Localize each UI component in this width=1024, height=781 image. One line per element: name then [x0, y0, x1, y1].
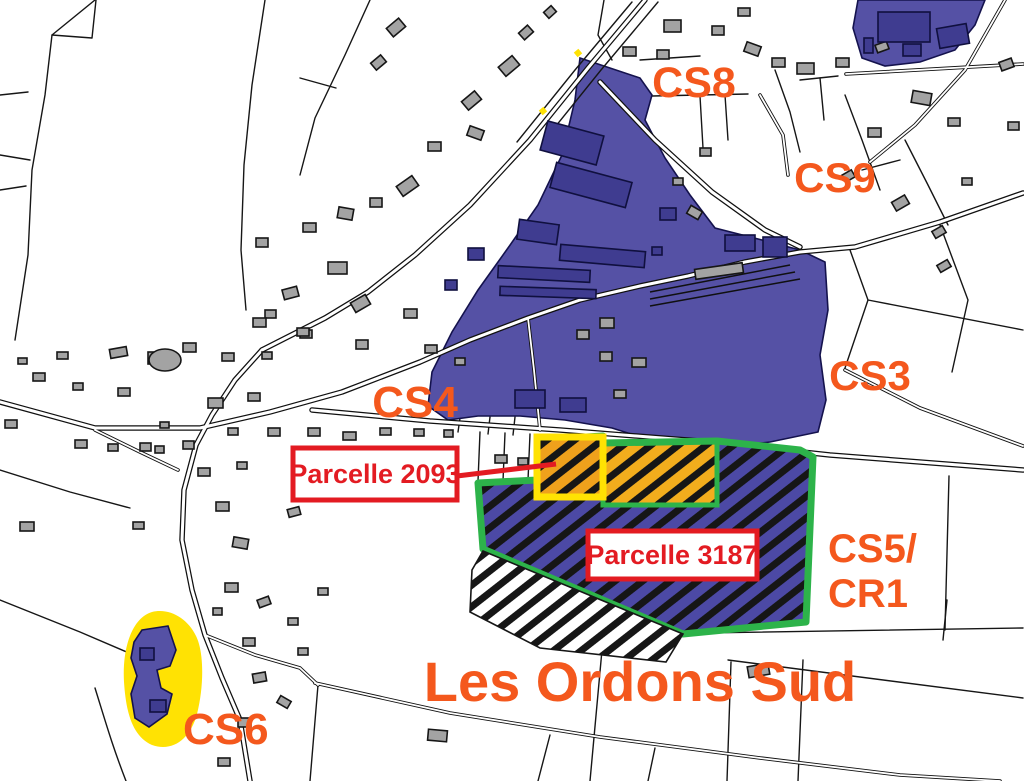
callout-parcelle-2093-text: Parcelle 2093 — [289, 459, 460, 489]
building — [1008, 122, 1019, 130]
callout-parcelle-3187-text: Parcelle 3187 — [586, 540, 757, 570]
building — [600, 318, 614, 328]
building — [140, 443, 151, 451]
building — [5, 420, 17, 428]
building — [75, 440, 87, 448]
building — [73, 383, 83, 390]
building — [140, 648, 154, 660]
building — [370, 198, 382, 207]
building — [218, 758, 230, 766]
zone-label-cs3: CS3 — [829, 352, 911, 399]
building — [265, 310, 276, 318]
building — [262, 352, 272, 359]
building — [298, 648, 308, 655]
building — [445, 280, 457, 290]
building — [183, 441, 194, 449]
building — [518, 458, 528, 465]
building — [468, 248, 484, 260]
building — [614, 390, 626, 398]
building — [864, 38, 873, 53]
building — [657, 50, 669, 59]
building — [414, 429, 424, 436]
zone-label-cs5: CS5/ — [828, 527, 917, 571]
building — [155, 446, 164, 453]
building — [337, 207, 354, 220]
building — [237, 462, 247, 469]
building — [632, 358, 646, 367]
building — [108, 444, 118, 451]
building — [868, 128, 881, 137]
building — [33, 373, 45, 381]
callout-parcelle-2093: Parcelle 2093 — [289, 448, 460, 500]
building — [318, 588, 328, 595]
building — [208, 398, 223, 408]
building — [700, 148, 711, 156]
building — [712, 26, 724, 35]
building — [198, 468, 210, 476]
building — [222, 353, 234, 361]
building — [560, 398, 586, 412]
building — [428, 142, 441, 151]
orange-hatched-strip — [603, 442, 717, 505]
building — [495, 455, 507, 463]
building — [404, 309, 417, 318]
building — [183, 343, 196, 352]
area-label-les-ordons-sud: Les Ordons Sud — [424, 650, 857, 713]
building — [356, 340, 368, 349]
building — [268, 428, 280, 436]
building — [308, 428, 320, 436]
cadastral-map: CS8 CS9 CS3 CS4 CS5/ CR1 CS6 Les Ordons … — [0, 0, 1024, 781]
building — [256, 238, 268, 247]
building — [911, 90, 932, 105]
building — [738, 8, 750, 16]
building — [797, 63, 814, 74]
building — [149, 349, 181, 371]
building — [878, 12, 930, 42]
building — [836, 58, 849, 67]
building — [600, 352, 612, 361]
building — [725, 235, 755, 251]
building — [248, 393, 260, 401]
building — [772, 58, 785, 67]
building — [444, 430, 453, 437]
zone-label-cs4: CS4 — [372, 378, 458, 427]
building — [228, 428, 238, 435]
building — [20, 522, 34, 531]
building — [252, 672, 266, 683]
building — [232, 537, 249, 549]
building — [343, 432, 356, 440]
building — [133, 522, 144, 529]
building — [297, 328, 309, 336]
building — [57, 352, 68, 359]
callout-parcelle-3187: Parcelle 3187 — [586, 531, 757, 579]
building — [664, 20, 681, 32]
building — [216, 502, 229, 511]
building — [903, 44, 921, 56]
building — [160, 422, 169, 428]
building — [962, 178, 972, 185]
building — [243, 638, 255, 646]
building — [18, 358, 27, 364]
building — [213, 608, 222, 615]
cadastral-map-svg: CS8 CS9 CS3 CS4 CS5/ CR1 CS6 Les Ordons … — [0, 0, 1024, 781]
zone-label-cs8: CS8 — [652, 59, 736, 107]
building — [515, 390, 545, 408]
building — [936, 24, 969, 49]
building — [948, 118, 960, 126]
building — [225, 583, 238, 592]
building — [623, 47, 636, 56]
building — [303, 223, 316, 232]
zone-label-cs9: CS9 — [794, 154, 876, 201]
zone-label-cs6: CS6 — [183, 705, 269, 754]
building — [425, 345, 437, 353]
building — [660, 208, 676, 220]
building — [428, 729, 448, 742]
zone-label-cr1: CR1 — [828, 572, 908, 616]
building — [150, 700, 166, 712]
building — [288, 618, 298, 625]
building — [652, 247, 662, 255]
building — [673, 178, 683, 185]
building — [109, 347, 127, 359]
building — [380, 428, 391, 435]
building — [763, 237, 787, 257]
building — [253, 318, 266, 327]
building — [328, 262, 347, 274]
building — [577, 330, 589, 339]
building — [455, 358, 465, 365]
building — [118, 388, 130, 396]
